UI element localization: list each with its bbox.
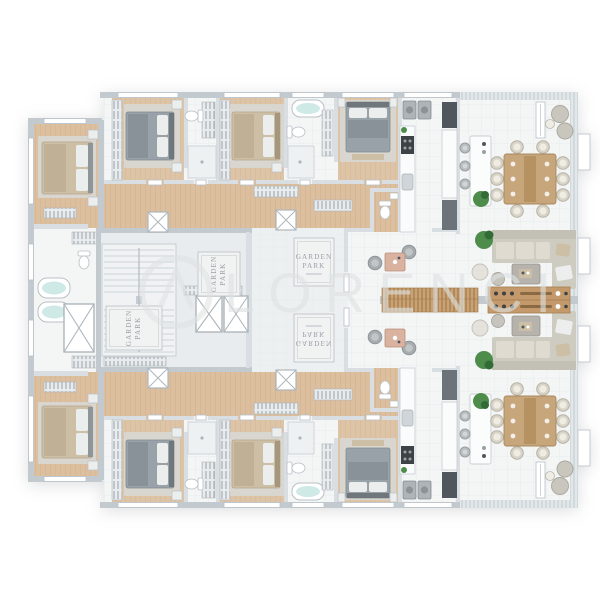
door-mat-core: GARDEN PARK xyxy=(106,306,162,350)
watermark-text: LORENCI xyxy=(224,261,564,324)
core-storage xyxy=(104,357,166,366)
floor-plan-svg: GARDEN PARK xyxy=(0,0,600,600)
mat-text-line2: PARK xyxy=(134,317,142,340)
floor-plan-canvas: GARDEN PARK xyxy=(0,0,600,600)
elevator xyxy=(64,304,94,352)
service-shaft xyxy=(148,212,168,232)
service-shaft xyxy=(148,368,168,388)
mat-text-line1: GARDEN xyxy=(125,310,133,347)
